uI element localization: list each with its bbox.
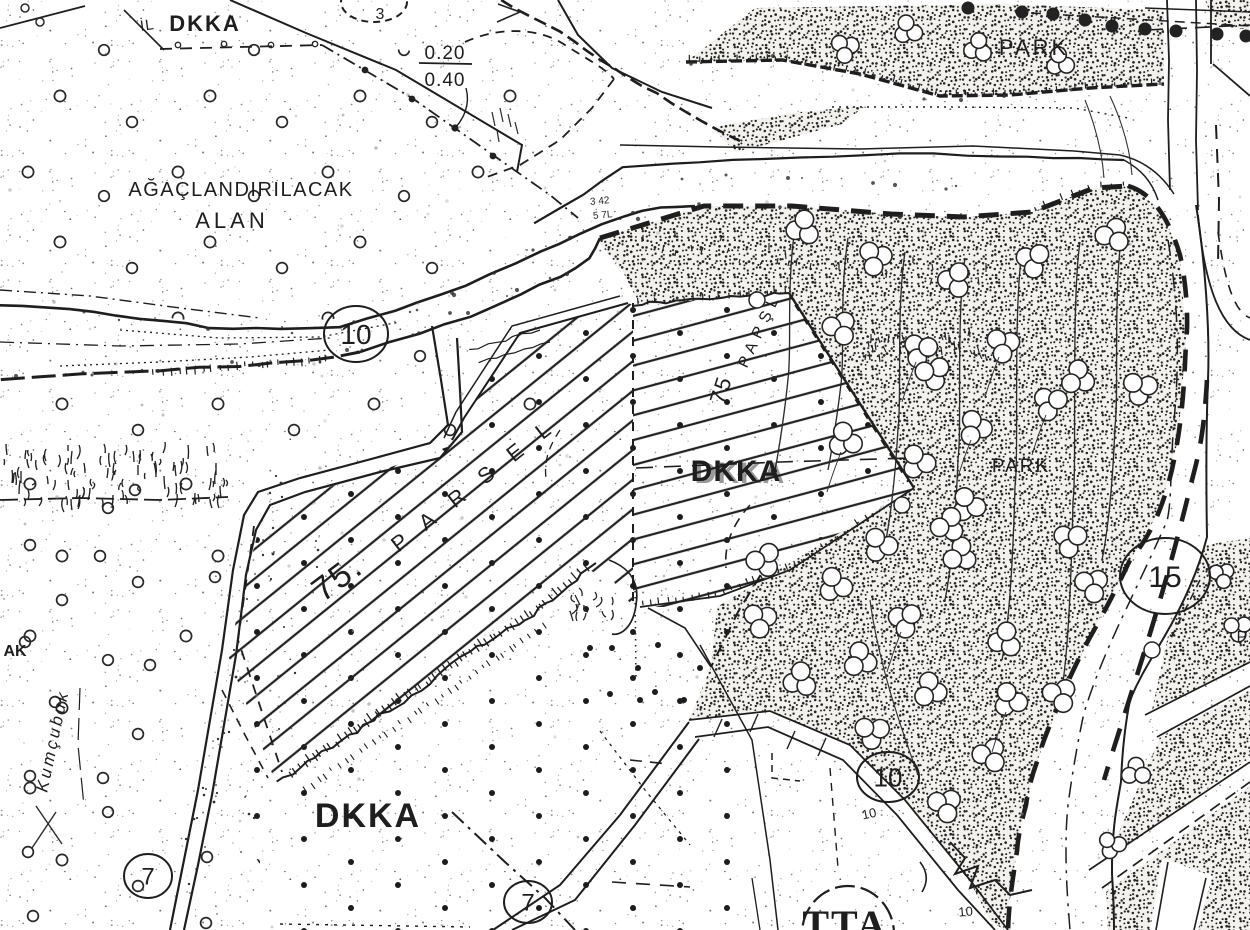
svg-text:DKKA: DKKA <box>315 797 421 835</box>
svg-text:TTA: TTA <box>802 902 887 930</box>
svg-text:7: 7 <box>521 890 534 917</box>
svg-text:3 42: 3 42 <box>590 195 611 208</box>
svg-text:ALAN: ALAN <box>195 208 268 233</box>
svg-text:15: 15 <box>1148 561 1181 594</box>
svg-text:10: 10 <box>874 762 903 792</box>
svg-text:10: 10 <box>958 903 974 919</box>
svg-text:AĞAÇLANDIRILACAK: AĞAÇLANDIRILACAK <box>128 178 353 201</box>
svg-text:0.20: 0.20 <box>425 43 466 64</box>
svg-text:0.40: 0.40 <box>425 70 466 91</box>
svg-text:DKKA: DKKA <box>169 11 241 36</box>
svg-text:10: 10 <box>860 805 877 823</box>
svg-text:İL: İL <box>139 15 156 35</box>
svg-text:7: 7 <box>141 864 154 891</box>
svg-text:3: 3 <box>376 6 385 23</box>
svg-text:5 7L: 5 7L <box>593 209 614 222</box>
svg-text:10: 10 <box>340 319 371 350</box>
svg-text:PARK: PARK <box>992 456 1050 477</box>
svg-text:P.: P. <box>1236 629 1249 646</box>
svg-text:PARK: PARK <box>999 35 1069 60</box>
svg-text:DKKA: DKKA <box>695 457 786 490</box>
svg-text:AK: AK <box>3 643 27 660</box>
